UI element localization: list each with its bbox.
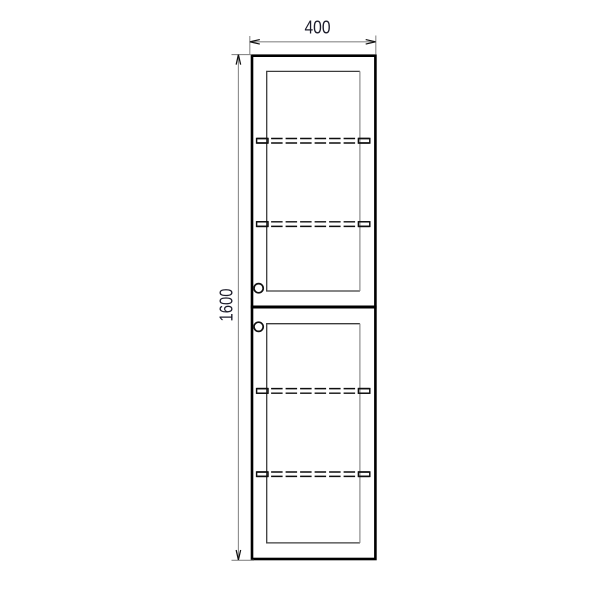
svg-text:400: 400	[305, 18, 331, 38]
svg-text:1600: 1600	[216, 289, 237, 322]
